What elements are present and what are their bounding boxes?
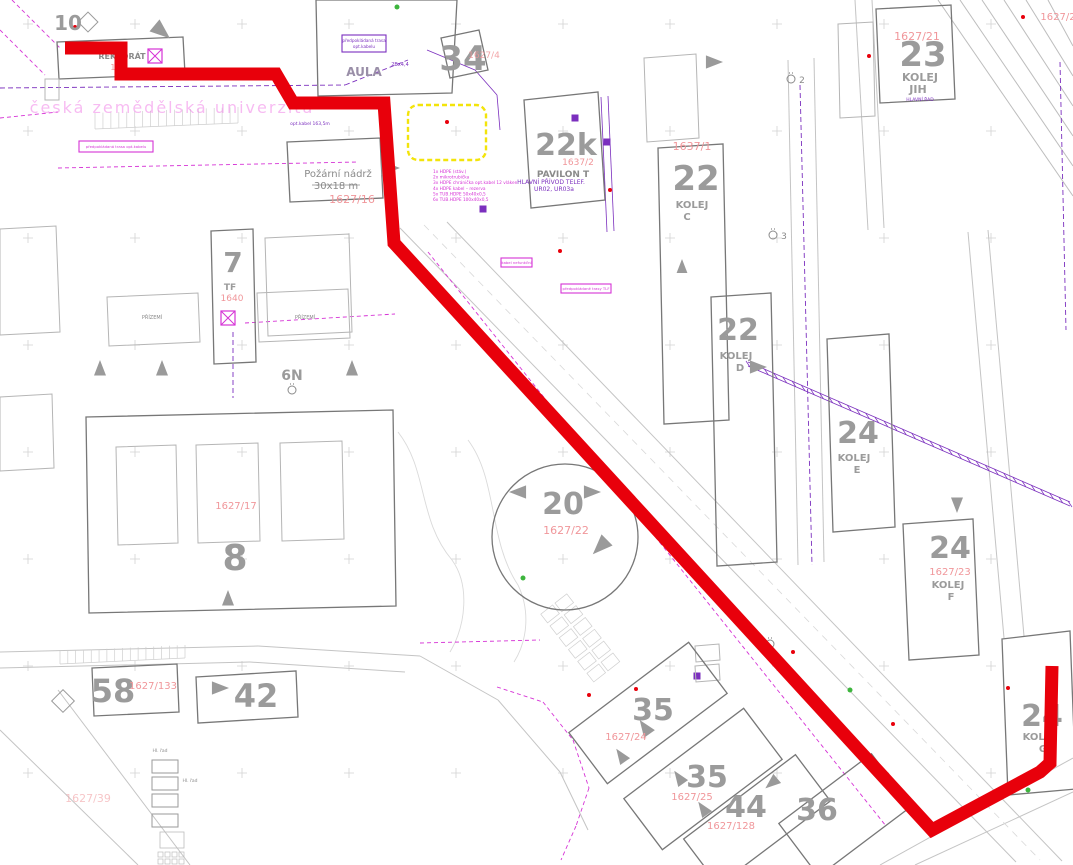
road-line: [420, 656, 498, 700]
map-label: 1627/128: [707, 821, 755, 832]
survey-cross: [23, 554, 33, 564]
direction-arrow: [346, 360, 358, 376]
boxed-annotation-text: předpokládaná trasa opt.kabelu: [86, 144, 147, 149]
survey-cross: [558, 661, 568, 671]
survey-cross: [665, 233, 675, 243]
survey-cross: [130, 19, 140, 29]
survey-cross: [986, 19, 996, 29]
utility-line: [608, 96, 614, 231]
utility-line: [497, 687, 543, 702]
map-label: 3: [781, 232, 787, 242]
building-footprint: [695, 644, 720, 662]
yellow-highlight-box: [408, 105, 486, 160]
cable-list-item: 5x TUB.HDPE 50x40x0,5: [433, 191, 486, 197]
cable-node: [604, 139, 611, 146]
direction-arrow: [156, 360, 168, 376]
well-marker: [288, 386, 296, 394]
direction-arrow: [951, 498, 963, 514]
survey-cross: [665, 126, 675, 136]
survey-cross: [558, 233, 568, 243]
survey-cross: [558, 554, 568, 564]
road-line: [872, 0, 884, 228]
road-line: [988, 230, 1024, 636]
map-label: 2Bx4,4: [391, 62, 409, 68]
building-footprint: [196, 443, 260, 543]
small-structure: [152, 794, 178, 807]
map-label: D: [736, 363, 744, 374]
survey-cross: [344, 340, 354, 350]
survey-cross: [986, 661, 996, 671]
map-label: 1627/25: [671, 792, 713, 803]
survey-cross: [665, 768, 675, 778]
survey-cross: [772, 19, 782, 29]
direction-arrow: [222, 590, 234, 606]
small-structure: [152, 777, 178, 790]
map-label: 6N: [281, 368, 302, 384]
map-label: 1627/24: [605, 732, 647, 743]
map-label: 1627/39: [65, 792, 111, 805]
map-label: 42: [234, 677, 279, 715]
road-line: [960, 0, 1073, 166]
map-label: 22: [717, 313, 759, 348]
survey-cross: [451, 126, 461, 136]
survey-cross: [558, 447, 568, 457]
small-structure: [152, 760, 178, 773]
survey-cross: [451, 661, 461, 671]
utility-line: [601, 97, 607, 232]
utility-line: [420, 640, 540, 643]
road-line: [855, 0, 868, 230]
map-label: 30x18 m: [314, 181, 358, 192]
map-label: 1627/22: [543, 524, 589, 537]
survey-cross: [23, 19, 33, 29]
map-label: HLAVNÍ PŘÍVOD TELEF.: [517, 178, 585, 186]
survey-cross: [879, 661, 889, 671]
survey-cross: [986, 126, 996, 136]
boxed-annotation-text: předpokládaná trasa: [342, 38, 386, 43]
utility-line: [543, 702, 573, 740]
map-label: PŘÍZEMÍ: [142, 313, 163, 321]
red-marker: [867, 54, 871, 58]
survey-cross: [23, 233, 33, 243]
survey-cross: [451, 768, 461, 778]
utility-line: [1060, 62, 1066, 330]
map-label: UR02, UR03a: [534, 186, 574, 193]
survey-cross: [237, 768, 247, 778]
yellow-highlight-rect: [408, 105, 486, 160]
cable-node: [694, 673, 701, 680]
building-footprint: [280, 441, 344, 541]
utility-line: [561, 826, 576, 860]
survey-cross: [879, 447, 889, 457]
survey-cross: [986, 340, 996, 350]
utility-line: [576, 788, 589, 826]
map-label: česká zemědělská univerzita: [30, 98, 315, 117]
map-label: 1637/1: [673, 140, 712, 153]
map-label: KOLEJ: [676, 200, 709, 211]
survey-cross: [451, 340, 461, 350]
map-label: 1627/16: [329, 193, 375, 206]
direction-arrow: [750, 360, 767, 373]
cable-list-item: 1x HDPE (stáv.): [433, 168, 467, 175]
green-marker: [395, 5, 400, 10]
utility-line: [0, 30, 45, 75]
green-marker: [1026, 788, 1031, 793]
map-label: 2: [799, 76, 805, 86]
red-marker: [791, 650, 795, 654]
boxed-annotation-text: kabel nefunkční: [501, 260, 532, 265]
direction-arrow: [587, 534, 612, 559]
cable-node: [572, 115, 579, 122]
map-label: 35: [686, 760, 728, 795]
road-line: [938, 0, 1073, 196]
map-label: 8: [222, 538, 247, 579]
building-footprint: [0, 226, 60, 335]
red-marker: [587, 693, 591, 697]
survey-cross: [237, 233, 247, 243]
survey-cross: [23, 340, 33, 350]
red-marker: [1021, 15, 1025, 19]
map-label: F: [948, 592, 955, 603]
survey-cross: [772, 126, 782, 136]
red-marker: [608, 188, 612, 192]
utility-line: [12, 0, 60, 48]
direction-arrow: [584, 485, 601, 498]
contour-line: [398, 432, 464, 652]
survey-cross: [772, 447, 782, 457]
map-label: KOLEJ: [838, 453, 871, 464]
building-footprint: [644, 54, 699, 142]
map-label: AULA: [346, 65, 382, 79]
red-marker: [891, 722, 895, 726]
red-marker: [634, 687, 638, 691]
road-line: [0, 662, 250, 668]
survey-cross: [344, 661, 354, 671]
map-label: KOLEJ: [720, 351, 753, 362]
green-marker: [521, 576, 526, 581]
red-marker: [445, 120, 449, 124]
map-label: HLAVNÍ ŘAD: [906, 95, 934, 103]
map-label: 36: [796, 793, 838, 828]
survey-cross: [558, 19, 568, 29]
building-footprint: [838, 22, 875, 118]
survey-cross: [237, 19, 247, 29]
survey-cross: [237, 340, 247, 350]
map-label: TF: [224, 283, 236, 293]
survey-cross: [986, 233, 996, 243]
survey-cross: [879, 126, 889, 136]
survey-cross: [665, 340, 675, 350]
building-footprint: [45, 79, 59, 100]
survey-cross: [130, 447, 140, 457]
road-line: [258, 646, 420, 656]
map-label: 22: [672, 159, 719, 199]
site-plan-svg: 10REKTORÁT164česká zemědělská univerzita…: [0, 0, 1073, 865]
campus-site-plan: 10REKTORÁT164česká zemědělská univerzita…: [0, 0, 1073, 865]
road-line: [498, 700, 560, 772]
survey-cross: [451, 554, 461, 564]
building-footprint: [116, 445, 178, 545]
green-marker: [848, 688, 853, 693]
utility-line: [497, 95, 500, 130]
survey-cross: [344, 126, 354, 136]
road-line: [968, 232, 1004, 638]
survey-cross: [130, 554, 140, 564]
contour-line: [468, 440, 526, 662]
survey-cross: [344, 554, 354, 564]
map-label: 20: [542, 487, 584, 522]
map-label: 1627/2: [1040, 12, 1073, 23]
red-marker: [1006, 686, 1010, 690]
map-label: Požární nádrž: [304, 168, 372, 180]
survey-cross: [986, 768, 996, 778]
direction-arrow: [706, 55, 723, 68]
road-line: [814, 58, 824, 562]
map-label: opt.kabel 163,5m: [290, 121, 330, 127]
map-label: 1627/4: [468, 51, 500, 61]
diamond-symbol: [52, 690, 75, 713]
map-label: 23: [899, 35, 946, 75]
survey-cross: [665, 19, 675, 29]
map-label: 1627/23: [929, 567, 971, 578]
direction-arrow: [94, 360, 106, 376]
survey-cross: [344, 447, 354, 457]
survey-cross: [879, 340, 889, 350]
road-line: [250, 662, 405, 672]
survey-cross: [130, 233, 140, 243]
road-line: [0, 646, 258, 652]
survey-cross: [558, 768, 568, 778]
map-label: 7: [223, 246, 242, 279]
map-label: 1637/2: [562, 158, 594, 168]
survey-cross: [130, 768, 140, 778]
building-footprint: [0, 394, 54, 471]
road-line: [788, 60, 798, 565]
map-label: 10: [54, 11, 82, 35]
survey-cross: [23, 126, 33, 136]
cable-node: [480, 206, 487, 213]
map-label: Hl. řad: [183, 777, 198, 784]
boxed-annotation-text: předpokládané trasy TLF: [562, 286, 609, 291]
survey-cross: [451, 447, 461, 457]
map-label: 1627/17: [215, 501, 257, 512]
map-label: 24: [837, 416, 879, 451]
map-label: 35: [632, 693, 674, 728]
map-label: C: [683, 212, 690, 223]
direction-arrow: [212, 681, 229, 694]
road-line: [1048, 0, 1073, 46]
red-marker: [558, 249, 562, 253]
map-label: 24: [929, 531, 971, 566]
survey-cross: [23, 447, 33, 457]
utility-line: [58, 162, 358, 168]
map-label: PŘÍZEMÍ: [295, 313, 316, 321]
map-label: 44: [725, 790, 767, 825]
survey-cross: [23, 661, 33, 671]
utility-line: [0, 85, 345, 88]
map-label: 1640: [221, 294, 244, 304]
survey-cross: [558, 340, 568, 350]
direction-arrow: [150, 19, 175, 44]
survey-cross: [986, 554, 996, 564]
road-line: [560, 772, 588, 830]
cable-list-item: 4x HDPE kabel – rezerva: [433, 186, 486, 192]
utility-line: [573, 740, 589, 788]
survey-cross: [665, 447, 675, 457]
survey-cross: [879, 19, 889, 29]
survey-cross: [344, 768, 354, 778]
direction-arrow: [677, 259, 688, 273]
utility-line: [800, 85, 812, 565]
map-label: 1627/133: [129, 681, 177, 692]
boxed-annotation-text: opt.kabelu: [353, 44, 376, 49]
survey-cross: [879, 554, 889, 564]
map-label: KOLEJ: [932, 580, 965, 591]
cable-list-item: 2x mikrotrubička: [433, 174, 470, 181]
survey-cross: [23, 768, 33, 778]
cable-list-item: 3x HDPE chránička opt.kabel 12 vláken: [433, 179, 518, 186]
survey-cross: [237, 447, 247, 457]
cable-list-item: 6x TUB.HDPE 100x40x0,5: [433, 197, 489, 203]
direction-arrow: [611, 745, 630, 765]
survey-cross: [665, 661, 675, 671]
survey-cross: [237, 126, 247, 136]
survey-cross: [879, 233, 889, 243]
map-label: E: [854, 465, 861, 476]
map-label: Hl. řad: [153, 747, 168, 754]
survey-cross: [772, 340, 782, 350]
parking-grid: [541, 594, 620, 682]
map-label: JIH: [908, 83, 926, 96]
survey-cross: [344, 19, 354, 29]
